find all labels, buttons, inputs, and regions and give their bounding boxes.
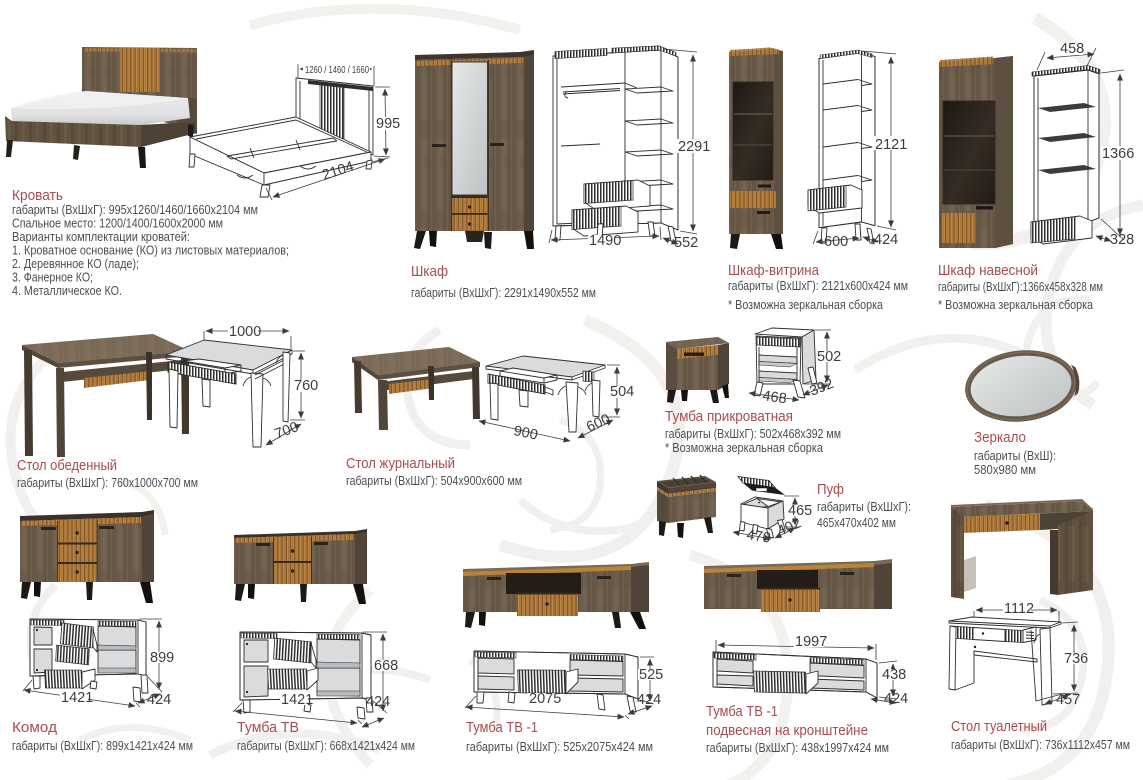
svg-text:1112: 1112 bbox=[1004, 601, 1034, 617]
svg-text:Пуф: Пуф bbox=[817, 482, 844, 498]
svg-text:470: 470 bbox=[745, 527, 771, 547]
svg-text:* Возможна зеркальная сборка: * Возможна зеркальная сборка bbox=[938, 297, 1094, 312]
svg-text:габариты (ВхШхГ): 502х468х392: габариты (ВхШхГ): 502х468х392 мм bbox=[665, 426, 841, 441]
svg-text:габариты (ВхШхГ): 736х1112х457: габариты (ВхШхГ): 736х1112х457 мм bbox=[951, 737, 1130, 752]
svg-text:Комод: Комод bbox=[12, 720, 58, 736]
svg-text:габариты (ВхШхГ): 504х900х600: габариты (ВхШхГ): 504х900х600 мм bbox=[346, 473, 522, 488]
svg-text:габариты (ВхШхГ): 668х1421х424: габариты (ВхШхГ): 668х1421х424 мм bbox=[237, 738, 415, 753]
svg-text:995: 995 bbox=[376, 116, 400, 132]
svg-text:габариты (ВхШхГ): 2291х1490х55: габариты (ВхШхГ): 2291х1490х552 мм bbox=[411, 285, 596, 300]
svg-text:600: 600 bbox=[584, 411, 613, 435]
svg-text:328: 328 bbox=[1110, 232, 1134, 248]
svg-text:подвесная на кронштейне: подвесная на кронштейне bbox=[706, 723, 868, 739]
svg-text:668: 668 bbox=[374, 658, 398, 674]
svg-text:габариты (ВхШхГ): 525х2075х424: габариты (ВхШхГ): 525х2075х424 мм bbox=[466, 739, 653, 754]
svg-text:502: 502 bbox=[817, 349, 841, 365]
svg-text:424: 424 bbox=[147, 692, 171, 708]
svg-text:2121: 2121 bbox=[875, 137, 907, 153]
svg-text:457: 457 bbox=[1056, 692, 1080, 708]
svg-text:424: 424 bbox=[366, 694, 390, 710]
svg-text:Зеркало: Зеркало bbox=[974, 430, 1026, 446]
svg-text:424: 424 bbox=[884, 691, 908, 707]
svg-text:габариты (ВхШхГ): 760х1000х700: габариты (ВхШхГ): 760х1000х700 мм bbox=[17, 475, 198, 490]
svg-text:Тумба ТВ -1: Тумба ТВ -1 bbox=[466, 720, 538, 736]
svg-text:438: 438 bbox=[882, 667, 906, 683]
svg-text:Шкаф: Шкаф bbox=[411, 264, 448, 280]
svg-text:700: 700 bbox=[273, 419, 301, 443]
svg-text:465: 465 bbox=[788, 503, 812, 519]
svg-text:1260 / 1460 / 1660: 1260 / 1460 / 1660 bbox=[305, 64, 369, 76]
svg-text:600: 600 bbox=[824, 234, 848, 250]
svg-text:580х980 мм: 580х980 мм bbox=[974, 462, 1036, 477]
svg-text:габариты (ВхШхГ): 899х1421х424: габариты (ВхШхГ): 899х1421х424 мм bbox=[12, 738, 193, 753]
svg-text:465х470х402 мм: 465х470х402 мм bbox=[817, 515, 896, 530]
svg-text:504: 504 bbox=[610, 384, 634, 400]
svg-text:1997: 1997 bbox=[795, 634, 827, 650]
svg-text:Шкаф-витрина: Шкаф-витрина bbox=[728, 263, 820, 279]
svg-text:900: 900 bbox=[512, 423, 539, 443]
svg-text:габариты (ВхШ):: габариты (ВхШ): bbox=[974, 448, 1056, 463]
svg-text:1000: 1000 bbox=[229, 324, 261, 340]
svg-text:Шкаф навесной: Шкаф навесной bbox=[938, 263, 1038, 279]
svg-text:1490: 1490 bbox=[589, 233, 621, 249]
svg-text:Стол обеденный: Стол обеденный bbox=[17, 458, 117, 474]
svg-text:* Возможна зеркальная сборка: * Возможна зеркальная сборка bbox=[665, 440, 824, 455]
svg-text:760: 760 bbox=[294, 378, 318, 394]
svg-text:Тумба ТВ: Тумба ТВ bbox=[237, 720, 299, 736]
svg-text:899: 899 bbox=[150, 650, 174, 666]
svg-text:габариты (ВхШхГ):1366х458х328: габариты (ВхШхГ):1366х458х328 мм bbox=[938, 279, 1103, 294]
svg-text:1421: 1421 bbox=[61, 690, 93, 706]
svg-text:424: 424 bbox=[637, 692, 661, 708]
svg-text:габариты (ВхШхГ): 2121х600х424: габариты (ВхШхГ): 2121х600х424 мм bbox=[728, 278, 908, 293]
svg-text:458: 458 bbox=[1060, 41, 1084, 57]
svg-text:552: 552 bbox=[674, 235, 698, 251]
svg-text:Тумба прикроватная: Тумба прикроватная bbox=[665, 409, 793, 425]
svg-text:424: 424 bbox=[874, 232, 898, 248]
svg-text:468: 468 bbox=[761, 388, 787, 407]
svg-text:2291: 2291 bbox=[678, 139, 710, 155]
svg-text:1421: 1421 bbox=[281, 692, 313, 708]
svg-text:1366: 1366 bbox=[1102, 146, 1134, 162]
svg-text:4. Металлическое КО.: 4. Металлическое КО. bbox=[12, 283, 122, 298]
svg-text:* Возможна зеркальная сборка: * Возможна зеркальная сборка bbox=[728, 297, 884, 312]
svg-text:Стол туалетный: Стол туалетный bbox=[951, 719, 1047, 735]
svg-text:525: 525 bbox=[639, 667, 663, 683]
svg-text:736: 736 bbox=[1064, 651, 1088, 667]
svg-text:Тумба ТВ -1: Тумба ТВ -1 bbox=[706, 704, 778, 720]
svg-text:габариты (ВхШхГ):: габариты (ВхШхГ): bbox=[817, 499, 911, 514]
svg-text:2075: 2075 bbox=[529, 691, 561, 707]
svg-text:Стол журнальный: Стол журнальный bbox=[346, 456, 455, 472]
svg-text:габариты (ВхШхГ): 438х1997х424: габариты (ВхШхГ): 438х1997х424 мм bbox=[706, 740, 889, 755]
